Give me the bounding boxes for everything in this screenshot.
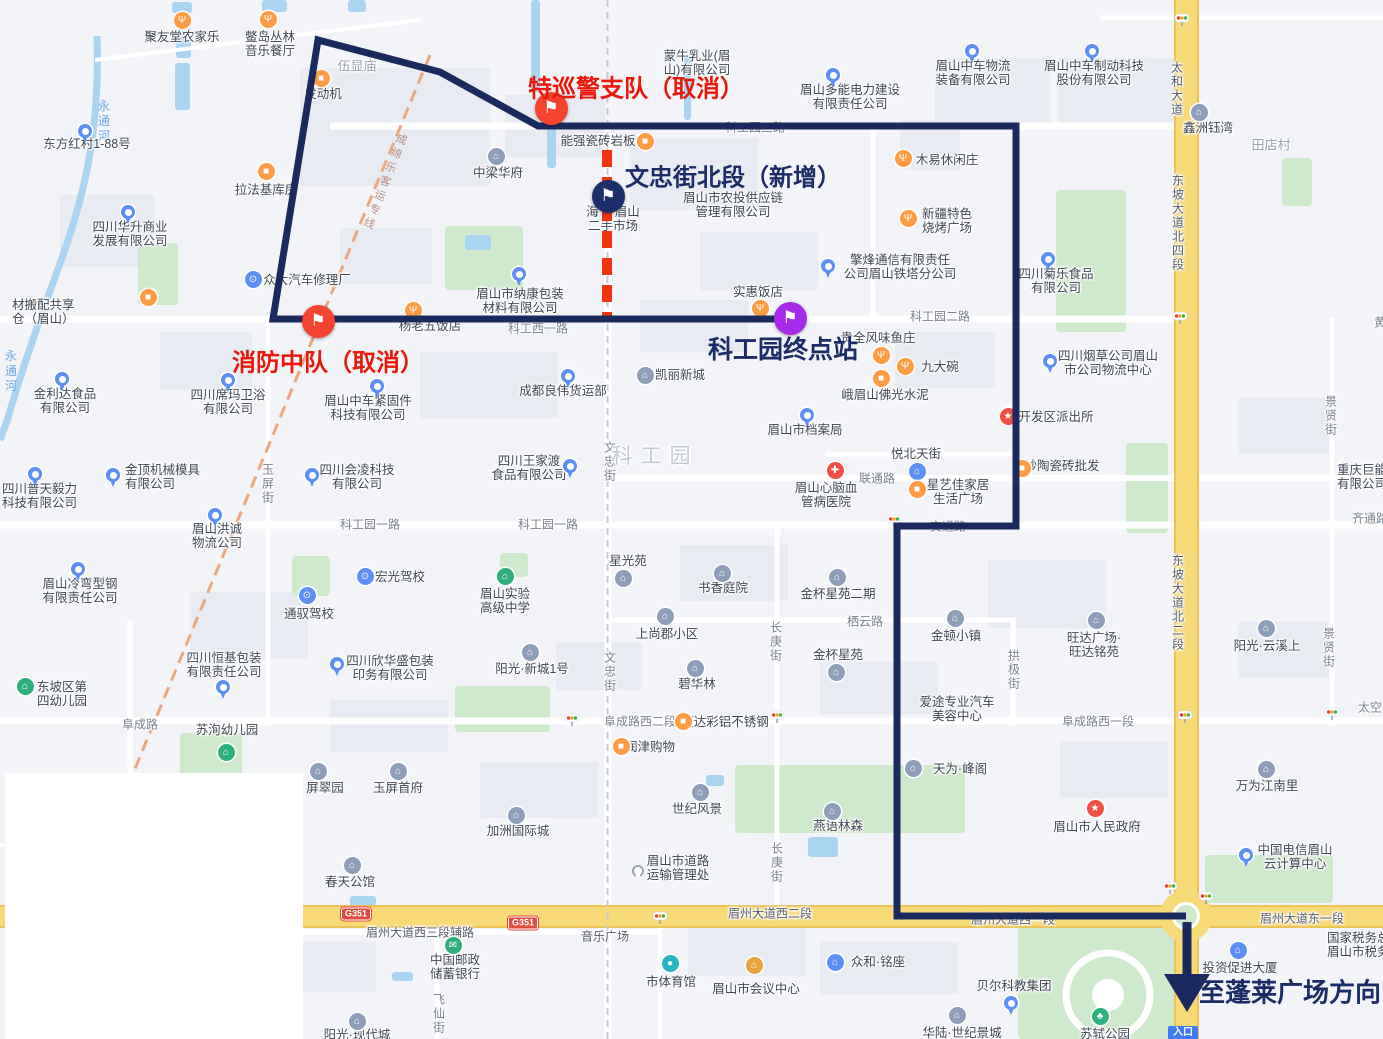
canceled-stop-label-texunjing: 特巡警支队（取消） (528, 69, 744, 104)
direction-label-penglai: 至蓬莱广场方向 (1199, 973, 1381, 1010)
legend-panel: 图示 原线路 拟调整线路 (5, 773, 303, 1039)
bus-route-map: 科工园三路科工园二路科工西一路科工园一路科工园一路联通路交通路齐通路黄栖云路阜成… (0, 0, 1383, 1039)
terminus-label-kegongyuan: 科工园终点站 (708, 330, 858, 366)
canceled-stop-label-xiaofang: 消防中队（取消） (232, 343, 424, 378)
new-stop-label-wenzhongjie: 文忠街北段（新增） (625, 158, 841, 193)
